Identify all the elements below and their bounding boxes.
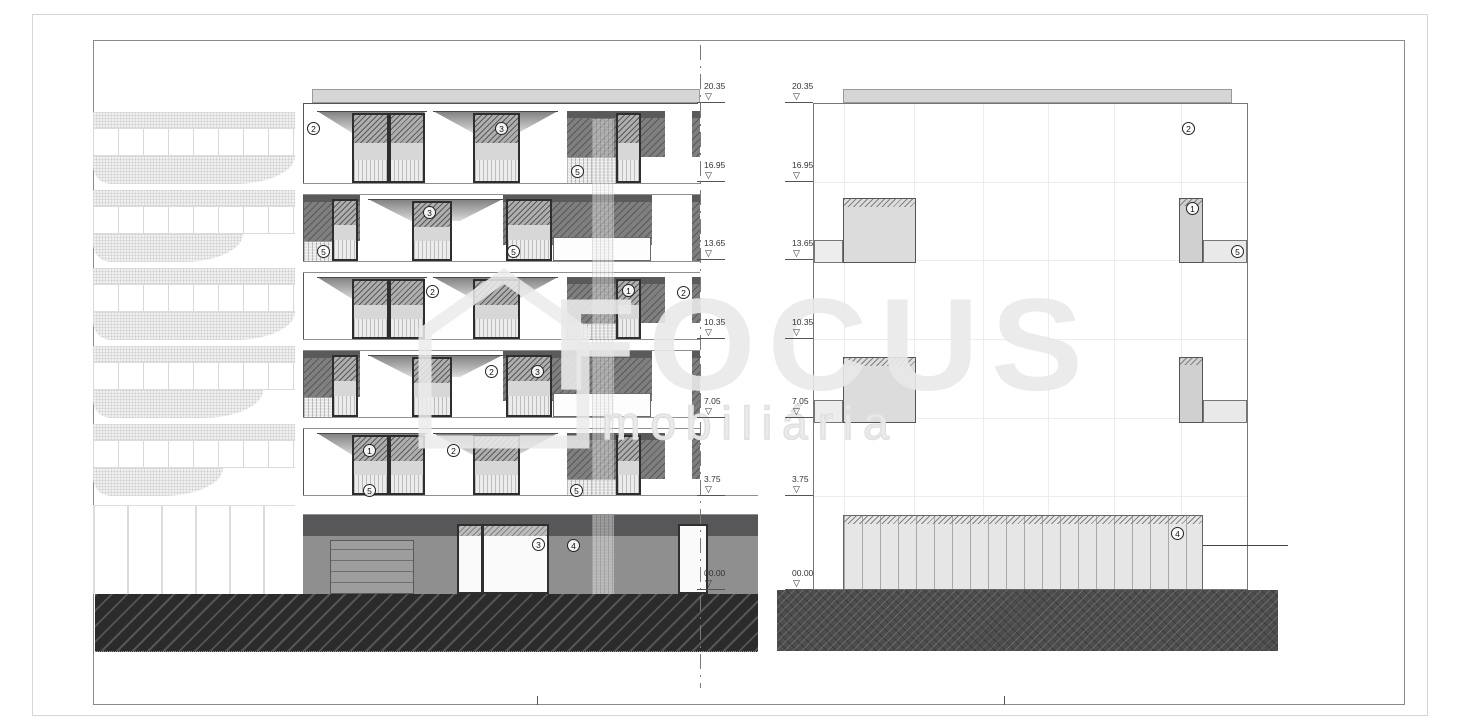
level-marker-value: 7.05 (792, 397, 822, 406)
ground-section-right (777, 590, 1278, 651)
annotation-circle: 4 (567, 539, 580, 552)
level-marker-triangle-icon: ▽ (793, 485, 803, 494)
annotation-circle: 5 (363, 484, 376, 497)
level-marker-triangle-icon: ▽ (705, 92, 715, 101)
level-marker-line (785, 102, 813, 103)
side-balcony-ledge (1203, 400, 1247, 423)
facade-grid-line (814, 182, 1247, 183)
level-marker-line (785, 338, 813, 339)
balcony-hatch-edge (1180, 358, 1202, 365)
level-marker-triangle-icon: ▽ (705, 407, 715, 416)
side-balcony-column (1179, 357, 1203, 423)
annotation-circle: 3 (531, 365, 544, 378)
level-marker-triangle-icon: ▽ (793, 328, 803, 337)
level-marker-triangle-icon: ▽ (793, 249, 803, 258)
annotation-circle: 5 (317, 245, 330, 258)
annotation-circle: 5 (570, 484, 583, 497)
cladding-hatch-edge (844, 516, 1202, 524)
neighbor-ground-pillars (93, 505, 295, 594)
garage-door (330, 540, 414, 594)
titleblock-divider-tick (1004, 696, 1005, 705)
level-marker-value: 00.00 (704, 569, 734, 578)
level-marker-value: 10.35 (792, 318, 822, 327)
level-marker-line (785, 181, 813, 182)
annotation-circle: 1 (363, 444, 376, 457)
level-marker-line (785, 589, 813, 590)
storefront-lintel-hatch (459, 526, 547, 536)
storefront-window (457, 524, 549, 594)
annotation-circle: 3 (423, 206, 436, 219)
level-marker-value: 13.65 (704, 239, 734, 248)
level-marker-line (697, 259, 725, 260)
annotation-circle: 1 (1186, 202, 1199, 215)
level-marker-value: 10.35 (704, 318, 734, 327)
annotation-circle: 4 (1171, 527, 1184, 540)
annotation-circle: 2 (426, 285, 439, 298)
titleblock-divider-tick (537, 696, 538, 705)
annotation-circle: 2 (1182, 122, 1195, 135)
level-marker-triangle-icon: ▽ (793, 407, 803, 416)
level-marker-value: 16.95 (704, 161, 734, 170)
level-marker-triangle-icon: ▽ (705, 171, 715, 180)
level-marker-triangle-icon: ▽ (705, 249, 715, 258)
storefront-mullion (481, 526, 484, 592)
level-marker-line (697, 102, 725, 103)
side-roof-parapet (843, 89, 1232, 103)
level-marker-triangle-icon: ▽ (705, 485, 715, 494)
annotation-circle: 5 (1231, 245, 1244, 258)
architectural-drawing-sheet: { "watermark": { "brand": "FOCUS", "subt… (0, 0, 1458, 720)
watermark-logo (0, 0, 700, 500)
level-marker-line (785, 417, 813, 418)
level-marker-line (697, 589, 725, 590)
level-marker-value: 3.75 (704, 475, 734, 484)
side-ground-cladding (843, 515, 1203, 590)
level-marker-value: 20.35 (704, 82, 734, 91)
annotation-circle: 3 (495, 122, 508, 135)
ground-door-opening (678, 524, 708, 594)
level-marker-line (785, 259, 813, 260)
level-marker-value: 16.95 (792, 161, 822, 170)
watermark-subtitle: mobiliária (602, 396, 899, 450)
annotation-circle: 3 (532, 538, 545, 551)
annotation-circle: 2 (485, 365, 498, 378)
level-marker-triangle-icon: ▽ (793, 92, 803, 101)
level-marker-value: 20.35 (792, 82, 822, 91)
level-marker-line (697, 338, 725, 339)
annotation-circle: 5 (571, 165, 584, 178)
level-marker-line (697, 495, 725, 496)
level-marker-line (785, 495, 813, 496)
level-marker-value: 3.75 (792, 475, 822, 484)
level-marker-triangle-icon: ▽ (793, 579, 803, 588)
annotation-circle: 2 (447, 444, 460, 457)
level-marker-value: 7.05 (704, 397, 734, 406)
annotation-circle: 2 (677, 286, 690, 299)
level-marker-line (697, 181, 725, 182)
level-marker-triangle-icon: ▽ (705, 579, 715, 588)
ground-section-left (95, 594, 758, 652)
level-marker-triangle-icon: ▽ (793, 171, 803, 180)
level-marker-value: 13.65 (792, 239, 822, 248)
side-balcony-box (843, 198, 916, 263)
level-marker-line (697, 417, 725, 418)
balcony-hatch-edge (844, 199, 915, 207)
facade-grid-line (814, 496, 1247, 497)
annotation-circle: 5 (507, 245, 520, 258)
annotation-circle: 1 (622, 284, 635, 297)
drawing-stage: FOCUS mobiliária 20.35▽20.35▽16.95▽16.95… (0, 0, 1458, 720)
level-marker-value: 00.00 (792, 569, 822, 578)
side-extension-line (1203, 545, 1288, 546)
annotation-circle: 2 (307, 122, 320, 135)
level-marker-triangle-icon: ▽ (705, 328, 715, 337)
